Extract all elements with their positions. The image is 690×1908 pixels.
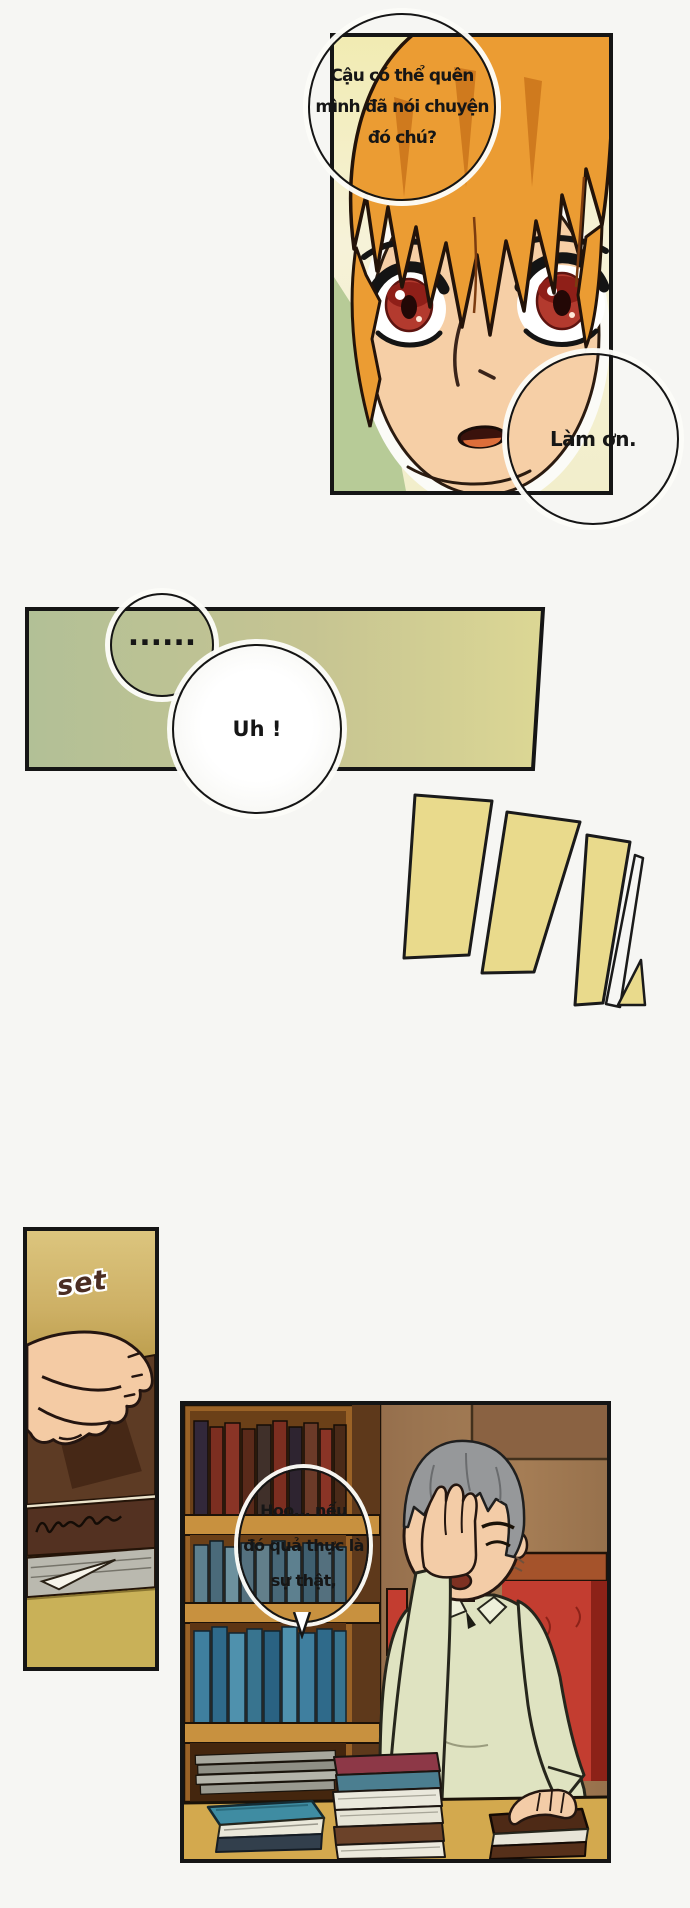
speech-bubble-plea: Làm ơn. xyxy=(507,353,679,525)
speech-bubble-musing: Hoo... nếu đó quả thực là sự thật, xyxy=(238,1468,369,1623)
dots-text: ...... xyxy=(128,618,196,653)
question-line-2: mình đã nói chuyện xyxy=(315,92,488,123)
bubble-tail xyxy=(291,1612,313,1639)
panel-man-at-desk xyxy=(180,1401,611,1863)
question-line-1: Cậu có thể quên xyxy=(330,61,473,92)
musing-line-3: sự thật, xyxy=(271,1563,336,1598)
comic-page: Cậu có thể quên mình đã nói chuyện đó ch… xyxy=(0,0,690,1908)
speech-bubble-question: Cậu có thể quên mình đã nói chuyện đó ch… xyxy=(308,13,496,201)
blue-shelf-books xyxy=(194,1627,346,1723)
speed-stripe-2 xyxy=(482,812,580,973)
desk-book-stack-middle xyxy=(333,1753,445,1859)
musing-line-1: Hoo... nếu xyxy=(260,1493,347,1528)
plea-text: Làm ơn. xyxy=(550,427,636,451)
uh-text: Uh ! xyxy=(233,717,282,741)
musing-line-2: đó quả thực là xyxy=(243,1528,364,1563)
stacked-magazines xyxy=(195,1750,338,1794)
question-line-3: đó chú? xyxy=(368,123,436,154)
table-cloth xyxy=(27,1589,155,1667)
speech-bubble-uh: Uh ! xyxy=(172,644,342,814)
man-desk-art xyxy=(184,1405,607,1859)
desk-book-left xyxy=(208,1801,324,1852)
speed-stripe-1 xyxy=(404,795,492,958)
speed-lines xyxy=(395,788,653,1014)
